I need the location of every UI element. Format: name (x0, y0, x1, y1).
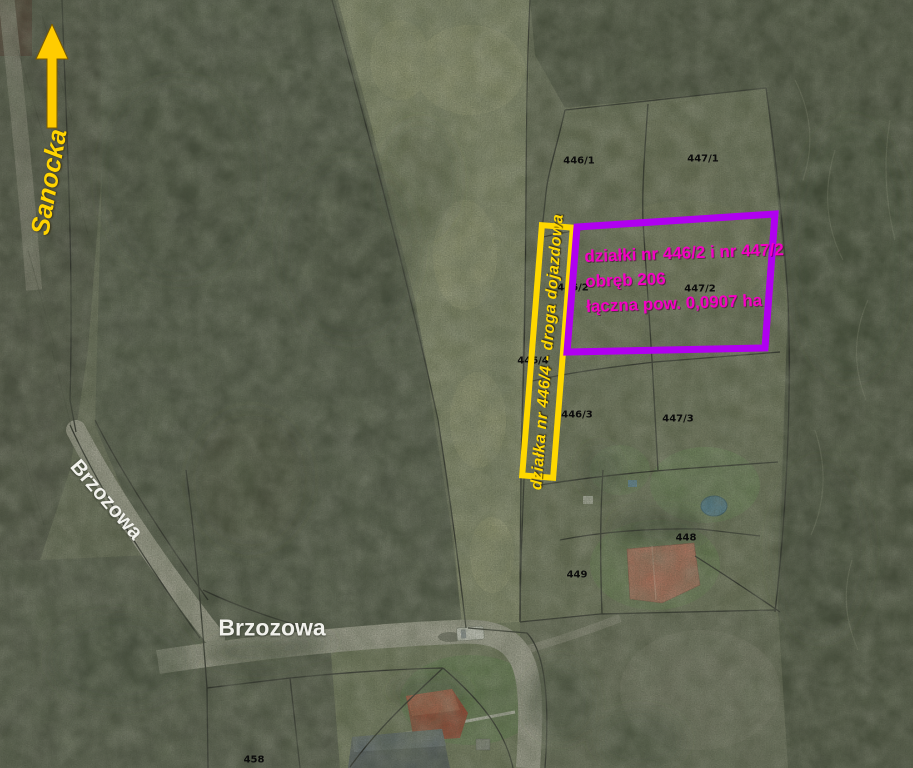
parcel-label-447-3: 447/3 (662, 414, 693, 425)
satellite-basemap (0, 0, 913, 768)
parcel-label-448: 448 (676, 533, 697, 544)
parcel-label-447-1: 447/1 (687, 154, 718, 165)
parcel-label-446-1: 446/1 (563, 156, 594, 167)
parcel-label-449: 449 (567, 570, 588, 581)
parcel-label-458: 458 (244, 755, 265, 766)
parcel-label-446-3: 446/3 (561, 410, 592, 421)
sanocka-direction-arrow-icon (34, 24, 70, 130)
street-label-brzozowa-lower: Brzozowa (218, 615, 325, 642)
highlighted-parcels-annotation: działki nr 446/2 i nr 447/2 obręb 206 łą… (584, 237, 786, 319)
aerial-cadastral-map: 446/1 447/1 446/2 447/2 446/4 446/3 447/… (0, 0, 913, 768)
